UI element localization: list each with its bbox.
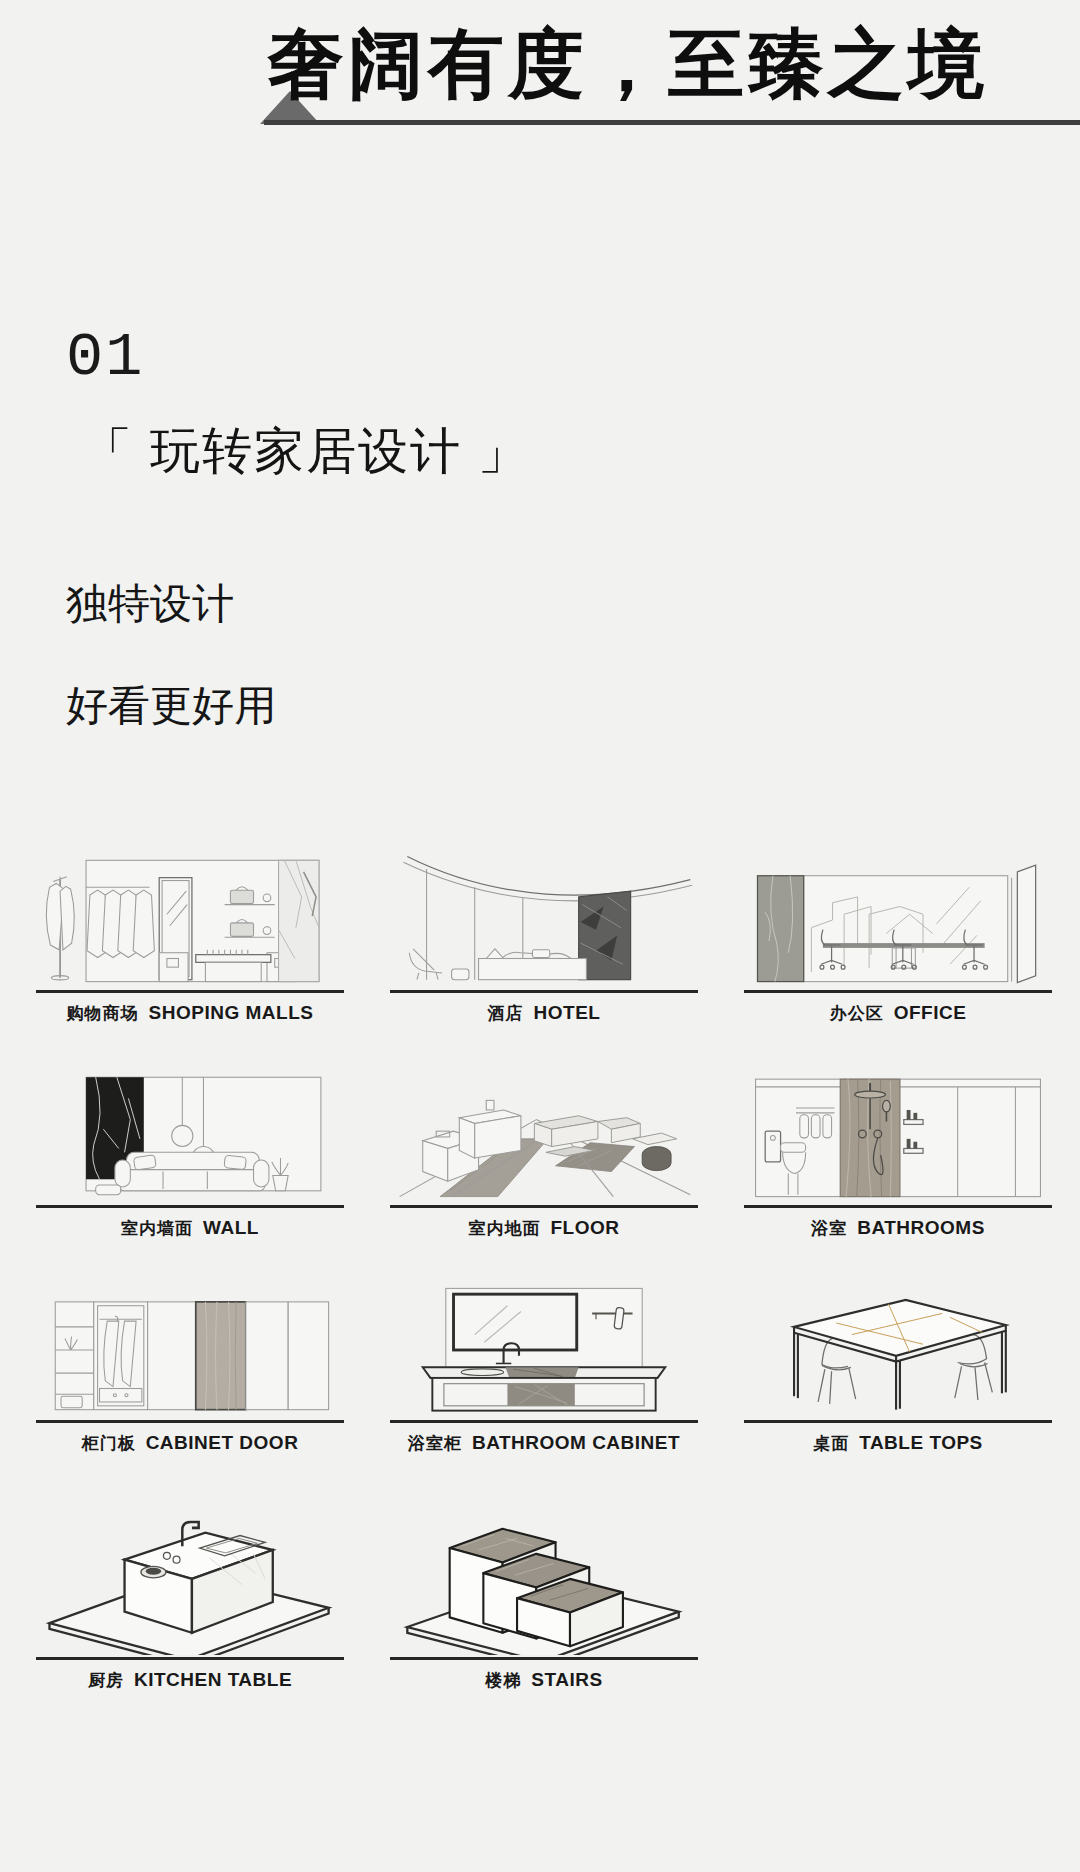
section-subtitle-2: 好看更好用 bbox=[66, 678, 276, 734]
scene-label-en: STAIRS bbox=[531, 1669, 602, 1691]
scene-baseline bbox=[390, 1420, 698, 1423]
scene-tile-office: 办公区 OFFICE bbox=[744, 852, 1052, 1025]
scene-label-zh: 柜门板 bbox=[82, 1433, 136, 1455]
scene-label-zh: 酒店 bbox=[488, 1003, 524, 1025]
section-subtitle-1: 独特设计 bbox=[66, 576, 234, 632]
scene-label-zh: 浴室 bbox=[811, 1218, 847, 1240]
scenes-row-3: 柜门板 CABINET DOOR bbox=[0, 1282, 1080, 1455]
scene-tile-cabinet-door: 柜门板 CABINET DOOR bbox=[36, 1282, 344, 1455]
scene-label-en: BATHROOM CABINET bbox=[472, 1432, 680, 1454]
scene-label-zh: 厨房 bbox=[88, 1670, 124, 1692]
scene-label-zh: 室内地面 bbox=[469, 1218, 541, 1240]
scene-tile-table-tops: 桌面 TABLE TOPS bbox=[744, 1282, 1052, 1455]
office-illustration bbox=[744, 852, 1052, 988]
page-title: 奢阔有度，至臻之境 bbox=[268, 22, 988, 106]
scene-tile-bathrooms: 浴室 BATHROOMS bbox=[744, 1067, 1052, 1240]
scene-tile-shopping-malls: 购物商场 SHOPING MALLS bbox=[36, 852, 344, 1025]
scene-label-zh: 购物商场 bbox=[67, 1003, 139, 1025]
scene-label-en: WALL bbox=[203, 1217, 259, 1239]
scene-baseline bbox=[36, 1420, 344, 1423]
cabinet-door-illustration bbox=[36, 1282, 344, 1418]
floor-illustration bbox=[390, 1067, 698, 1203]
scene-label-en: CABINET DOOR bbox=[146, 1432, 299, 1454]
scene-baseline bbox=[36, 1205, 344, 1208]
scene-baseline bbox=[744, 1420, 1052, 1423]
kitchen-table-illustration bbox=[36, 1497, 344, 1655]
scene-baseline bbox=[36, 990, 344, 993]
scene-tile-stairs: 楼梯 STAIRS bbox=[390, 1497, 698, 1692]
scenes-row-1: 购物商场 SHOPING MALLS bbox=[0, 852, 1080, 1025]
scene-label-zh: 桌面 bbox=[813, 1433, 849, 1455]
scene-tile-bathroom-cabinet: 浴室柜 BATHROOM CABINET bbox=[390, 1282, 698, 1455]
scene-baseline bbox=[744, 990, 1052, 993]
scenes-grid: 购物商场 SHOPING MALLS bbox=[0, 852, 1080, 1734]
shopping-mall-illustration bbox=[36, 852, 344, 988]
scenes-row-2: 室内墙面 WALL bbox=[0, 1067, 1080, 1240]
wall-illustration bbox=[36, 1067, 344, 1203]
scene-baseline bbox=[744, 1205, 1052, 1208]
table-tops-illustration bbox=[744, 1282, 1052, 1418]
scene-label-en: OFFICE bbox=[894, 1002, 967, 1024]
bathroom-cabinet-illustration bbox=[390, 1282, 698, 1418]
scene-label-zh: 室内墙面 bbox=[121, 1218, 193, 1240]
stairs-illustration bbox=[390, 1497, 698, 1655]
scene-tile-kitchen-table: 厨房 KITCHEN TABLE bbox=[36, 1497, 344, 1692]
scene-baseline bbox=[36, 1657, 344, 1660]
scene-baseline bbox=[390, 1205, 698, 1208]
scene-tile-hotel: 酒店 HOTEL bbox=[390, 852, 698, 1025]
page: 奢阔有度，至臻之境 01 「 玩转家居设计 」 独特设计 好看更好用 bbox=[0, 0, 1080, 1872]
scene-label-en: BATHROOMS bbox=[857, 1217, 985, 1239]
scene-tile-floor: 室内地面 FLOOR bbox=[390, 1067, 698, 1240]
scene-label-en: TABLE TOPS bbox=[859, 1432, 983, 1454]
scene-tile-wall: 室内墙面 WALL bbox=[36, 1067, 344, 1240]
scene-label-en: HOTEL bbox=[534, 1002, 601, 1024]
scene-label-zh: 楼梯 bbox=[485, 1670, 521, 1692]
hotel-illustration bbox=[390, 852, 698, 988]
section-number: 01 bbox=[66, 322, 144, 393]
header-rule bbox=[264, 120, 1080, 125]
scene-label-zh: 浴室柜 bbox=[408, 1433, 462, 1455]
scene-label-en: SHOPING MALLS bbox=[149, 1002, 314, 1024]
scene-label-en: FLOOR bbox=[551, 1217, 620, 1239]
scene-label-zh: 办公区 bbox=[830, 1003, 884, 1025]
scene-baseline bbox=[390, 1657, 698, 1660]
scene-tile-empty bbox=[744, 1497, 1052, 1692]
section-heading: 「 玩转家居设计 」 bbox=[82, 418, 530, 485]
bathroom-illustration bbox=[744, 1067, 1052, 1203]
scene-baseline bbox=[390, 990, 698, 993]
scenes-row-4: 厨房 KITCHEN TABLE bbox=[0, 1497, 1080, 1692]
scene-label-en: KITCHEN TABLE bbox=[134, 1669, 292, 1691]
